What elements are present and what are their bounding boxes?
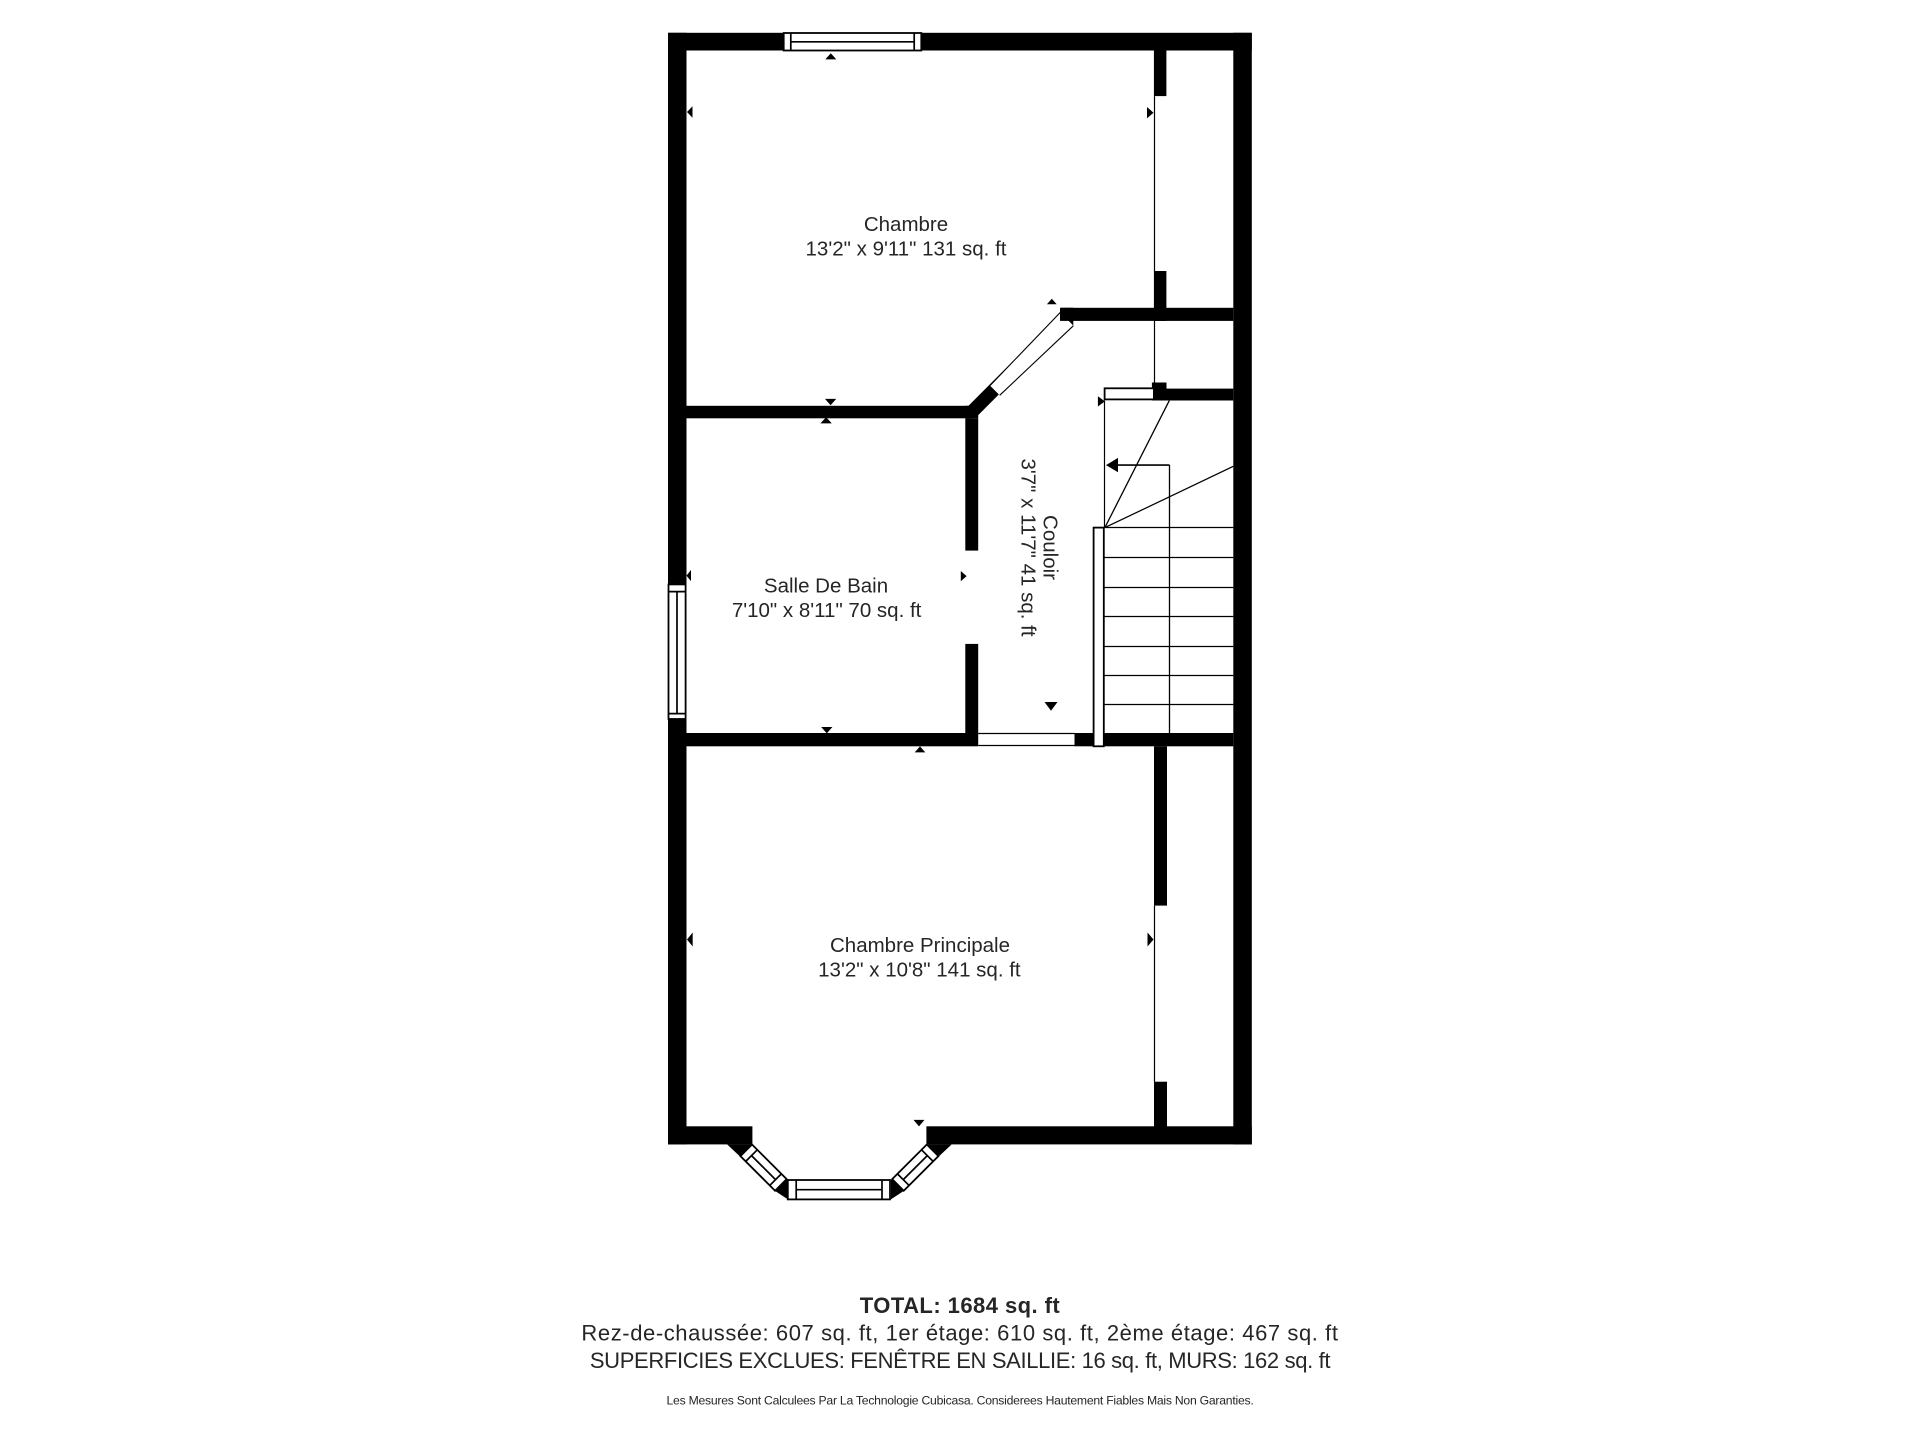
svg-text:Chambre: Chambre	[864, 213, 948, 236]
svg-text:TOTAL: 1684 sq. ft: TOTAL: 1684 sq. ft	[860, 1293, 1061, 1318]
svg-text:SUPERFICIES EXCLUES: FENÊTRE E: SUPERFICIES EXCLUES: FENÊTRE EN SAILLIE:…	[590, 1348, 1331, 1373]
svg-text:7'10" x 8'11" 70 sq. ft: 7'10" x 8'11" 70 sq. ft	[732, 599, 922, 622]
svg-text:Rez-de-chaussée: 607 sq. ft, 1: Rez-de-chaussée: 607 sq. ft, 1er étage: …	[581, 1321, 1338, 1346]
svg-text:Les Mesures Sont Calculees Par: Les Mesures Sont Calculees Par La Techno…	[667, 1394, 1254, 1408]
svg-text:Salle De Bain: Salle De Bain	[764, 574, 888, 597]
svg-text:13'2" x 10'8" 141 sq. ft: 13'2" x 10'8" 141 sq. ft	[818, 959, 1021, 982]
svg-text:Chambre Principale: Chambre Principale	[830, 934, 1010, 957]
svg-text:13'2" x 9'11" 131 sq. ft: 13'2" x 9'11" 131 sq. ft	[806, 237, 1007, 260]
